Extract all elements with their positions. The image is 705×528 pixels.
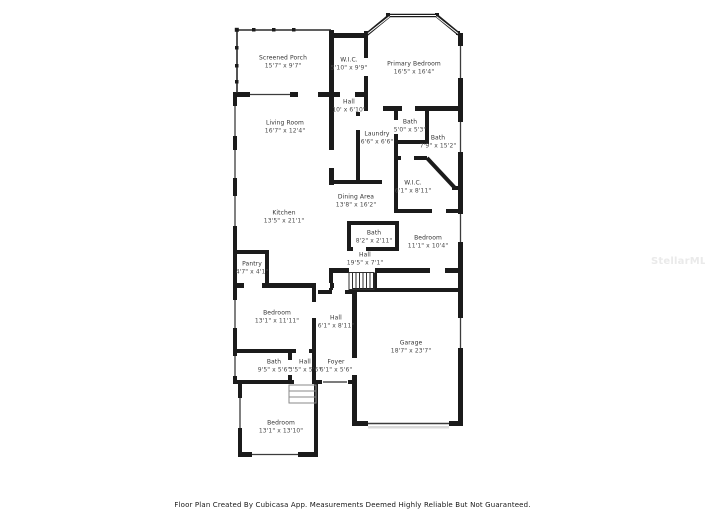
bay-window (366, 16, 460, 36)
room-label-garage: Garage18'7" x 23'7" (391, 340, 431, 355)
room-label-wic-right: W.I.C.6'1" x 8'11" (395, 180, 431, 195)
room-label-wic-top: W.I.C.5'10" x 9'9" (331, 57, 367, 72)
room-label-kitchen: Kitchen13'5" x 21'1" (264, 210, 304, 225)
room-label-bath-primary: Bath7'9" x 15'2" (420, 135, 456, 150)
room-label-hall-main: Hall19'5" x 7'1" (347, 252, 383, 267)
stairs (349, 273, 374, 290)
floorplan-page: Screened Porch15'7" x 9'7" W.I.C.5'10" x… (0, 0, 705, 528)
room-label-bath-middle: Bath8'2" x 2'11" (356, 230, 392, 245)
entry-steps (289, 385, 316, 403)
mls-watermark: StellarMLS (651, 256, 705, 267)
room-label-bedroom-bottom: Bedroom13'1" x 13'10" (259, 420, 303, 435)
room-label-hall-top: Hall10' x 6'10" (332, 99, 366, 114)
room-label-laundry: Laundry6'6" x 6'6" (361, 131, 394, 146)
room-label-pantry: Pantry4'7" x 4'1" (236, 261, 269, 276)
room-label-bedroom-left: Bedroom13'1" x 11'11" (255, 310, 299, 325)
footer-disclaimer: Floor Plan Created By Cubicasa App. Meas… (0, 501, 705, 509)
room-label-hall-small: Hall3'5" x 5'6" (289, 359, 322, 374)
room-label-primary-bedroom: Primary Bedroom16'5" x 16'4" (387, 61, 441, 76)
room-label-bedroom-right: Bedroom11'1" x 10'4" (408, 235, 448, 250)
room-label-hall-lower: Hall6'1" x 8'11" (318, 315, 354, 330)
room-label-dining-area: Dining Area13'8" x 16'2" (336, 194, 376, 209)
room-label-bath-small: Bath5'0" x 5'3" (394, 119, 427, 134)
garage-door (368, 421, 449, 429)
room-label-bath-lower: Bath9'5" x 5'6" (258, 359, 291, 374)
room-label-foyer: Foyer6'1" x 5'6" (320, 359, 353, 374)
room-label-living-room: Living Room16'7" x 12'4" (265, 120, 305, 135)
room-label-screened-porch: Screened Porch15'7" x 9'7" (259, 55, 307, 70)
